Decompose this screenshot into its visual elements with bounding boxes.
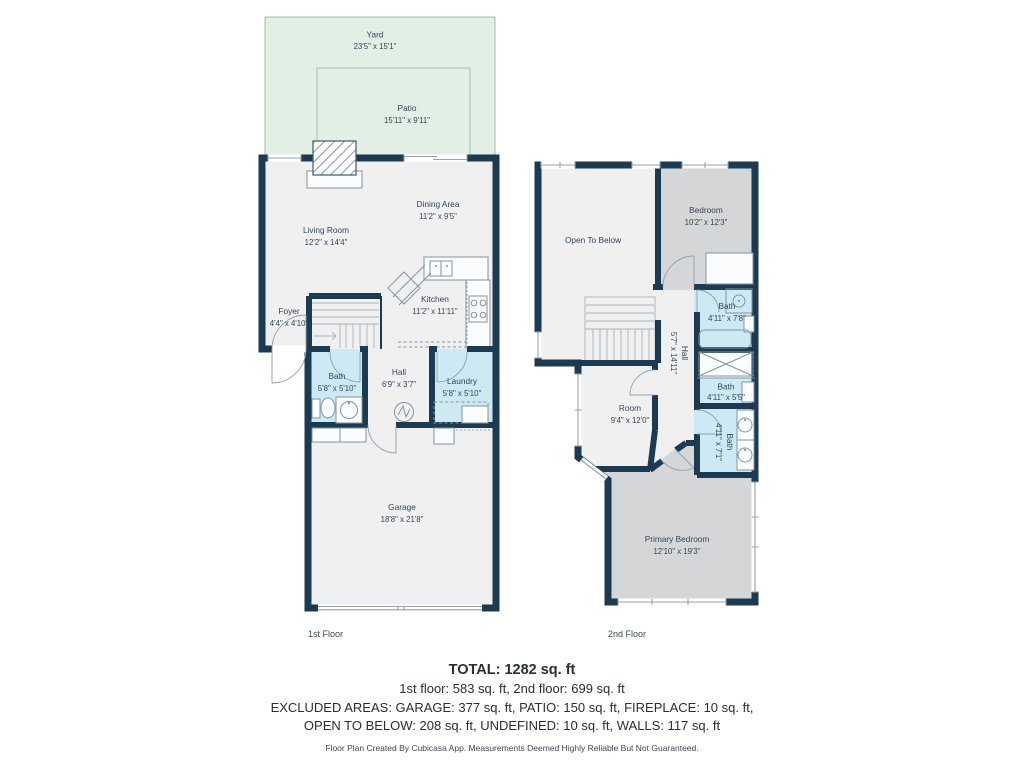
room-label: Room xyxy=(619,403,641,413)
garage-door xyxy=(318,605,482,612)
svg-text:Hall: Hall xyxy=(680,346,690,360)
fireplace-icon xyxy=(307,141,362,188)
bath-top-dims: 4'11" x 7'8" xyxy=(708,314,746,323)
dining-area-label: Dining Area xyxy=(417,199,460,209)
disclaimer-text: Floor Plan Created By Cubicasa App. Meas… xyxy=(0,743,1024,753)
sink-icon xyxy=(737,410,754,440)
sink-icon xyxy=(336,397,362,423)
floor-plan-canvas: Yard 23'5" x 15'1" Patio 15'11" x 9'11" … xyxy=(0,0,1024,768)
bath-label: Bath xyxy=(328,371,345,381)
excluded-areas-line1: EXCLUDED AREAS: GARAGE: 377 sq. ft, PATI… xyxy=(0,699,1024,718)
area-summary: TOTAL: 1282 sq. ft 1st floor: 583 sq. ft… xyxy=(0,660,1024,753)
yard-dims: 23'5" x 15'1" xyxy=(354,42,397,51)
kitchen-label: Kitchen xyxy=(421,294,449,304)
first-floor-plan: Yard 23'5" x 15'1" Patio 15'11" x 9'11" … xyxy=(262,17,497,639)
toilet-icon xyxy=(312,399,320,418)
laundry-dims: 5'8" x 5'10" xyxy=(443,389,482,398)
living-room-label: Living Room xyxy=(303,225,349,235)
garage-dims: 18'8" x 21'8" xyxy=(381,515,424,524)
total-area: TOTAL: 1282 sq. ft xyxy=(0,660,1024,680)
primary-bedroom-dims: 12'10" x 19'3" xyxy=(653,547,700,556)
primary-bedroom-label: Primary Bedroom xyxy=(645,534,710,544)
floor-plan-drawing: Yard 23'5" x 15'1" Patio 15'11" x 9'11" … xyxy=(0,0,1024,768)
bath-top-label: Bath xyxy=(718,301,735,311)
bath-mid-label: Bath xyxy=(717,382,734,392)
bedroom-dims: 10'2" x 12'3" xyxy=(685,218,728,227)
svg-text:Bath: Bath xyxy=(725,433,735,450)
yard-label: Yard xyxy=(367,30,384,40)
patio-label: Patio xyxy=(398,103,417,113)
garage-label: Garage xyxy=(388,502,416,512)
open-to-below-label: Open To Below xyxy=(565,235,622,245)
first-floor-caption: 1st Floor xyxy=(308,629,343,639)
hall-dims: 6'9" x 3'7" xyxy=(382,380,416,389)
bath-mid-dims: 4'11" x 5'5" xyxy=(707,393,745,402)
floor-areas: 1st floor: 583 sq. ft, 2nd floor: 699 sq… xyxy=(0,680,1024,699)
bedroom-label: Bedroom xyxy=(689,205,723,215)
second-floor-caption: 2nd Floor xyxy=(608,629,646,639)
patio-dims: 15'11" x 9'11" xyxy=(384,116,430,125)
svg-text:4'11" x 7'1": 4'11" x 7'1" xyxy=(714,423,723,461)
laundry-label: Laundry xyxy=(447,376,478,386)
foyer-label: Foyer xyxy=(278,306,299,316)
bath-dims: 5'8" x 5'10" xyxy=(318,384,357,393)
hall-label: Hall xyxy=(392,367,406,377)
second-floor-plan: Open To Below Bedroom 10'2" x 12'3" Bath… xyxy=(535,162,760,640)
dining-area-dims: 11'2" x 9'5" xyxy=(419,212,457,221)
room-dims: 9'4" x 12'0" xyxy=(611,416,650,425)
sink-icon xyxy=(737,440,754,470)
living-room-dims: 12'2" x 14'4" xyxy=(305,238,348,247)
closet-box xyxy=(706,253,753,284)
kitchen-dims: 11'2" x 11'11" xyxy=(412,307,458,316)
excluded-areas-line2: OPEN TO BELOW: 208 sq. ft, UNDEFINED: 10… xyxy=(0,717,1024,736)
svg-text:5'7" x 14'11": 5'7" x 14'11" xyxy=(669,332,678,374)
foyer-dims: 4'4" x 4'10" xyxy=(270,319,309,328)
